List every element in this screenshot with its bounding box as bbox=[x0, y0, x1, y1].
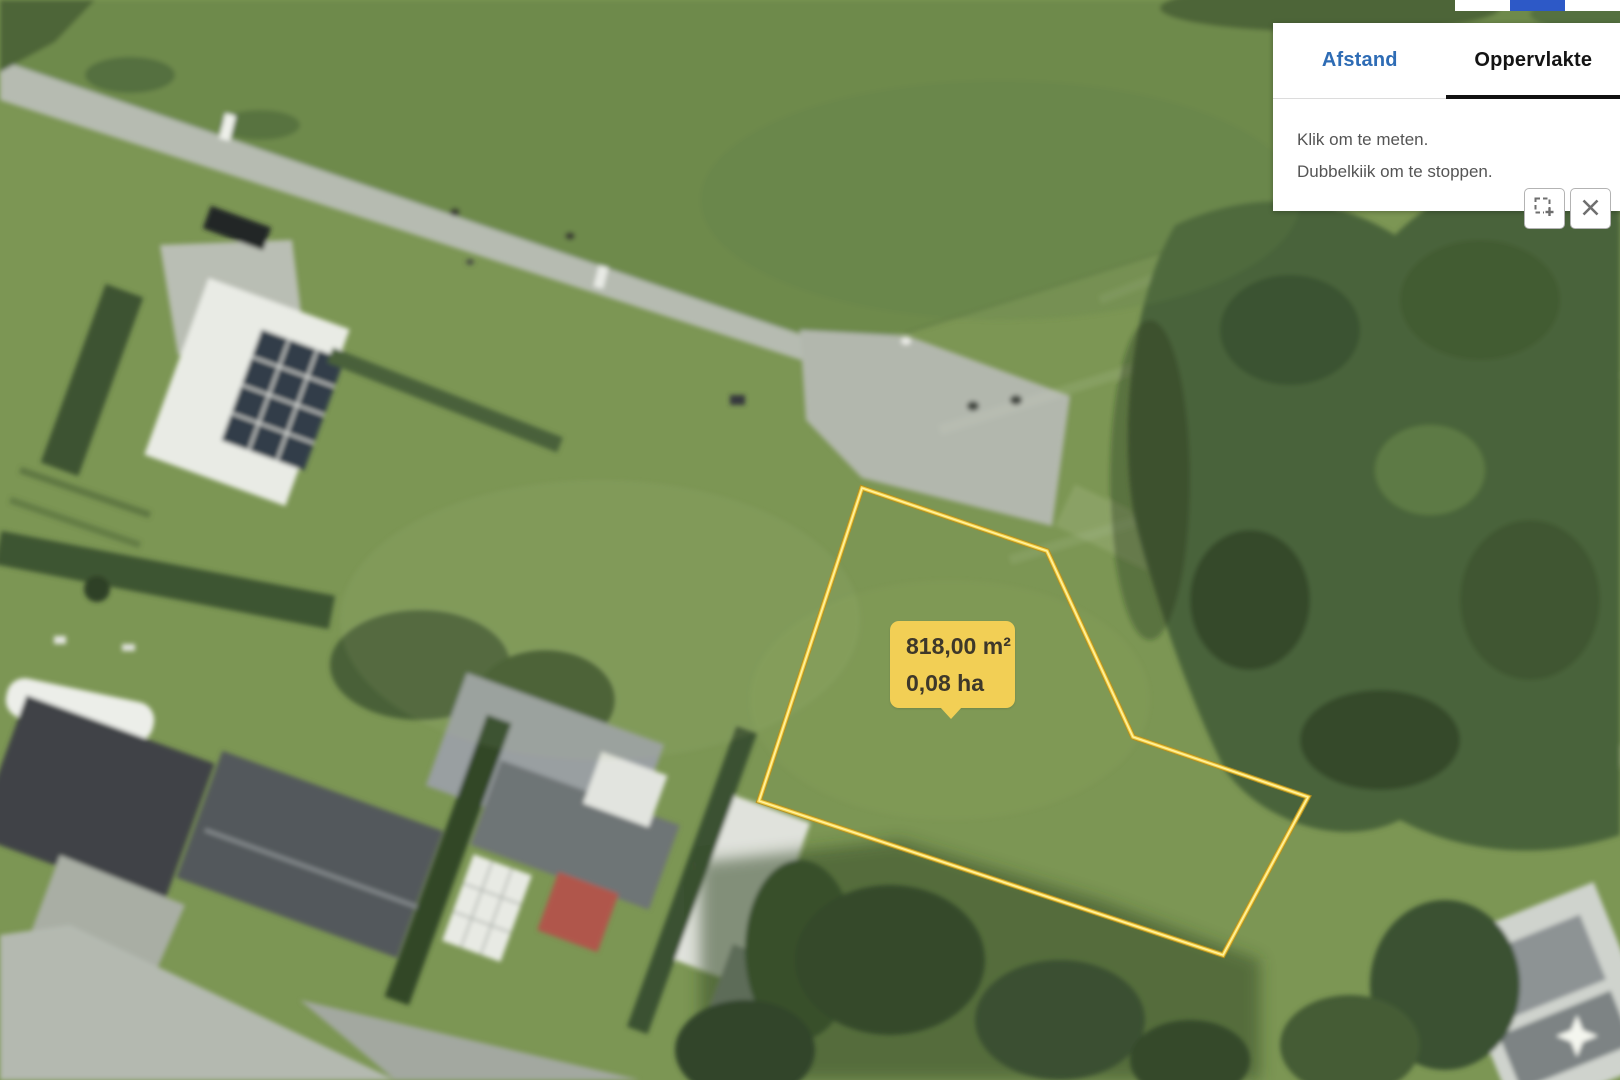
instruction-line-2: Dubbelkiik om te stoppen. bbox=[1297, 156, 1493, 188]
tab-afstand[interactable]: Afstand bbox=[1273, 23, 1447, 98]
measure-widget-panel: Afstand Oppervlakte Klik om te meten. Du… bbox=[1273, 23, 1620, 211]
measure-tabs: Afstand Oppervlakte bbox=[1273, 23, 1620, 99]
new-measurement-icon bbox=[1533, 196, 1556, 222]
measure-instructions: Klik om te meten. Dubbelkiik om te stopp… bbox=[1297, 124, 1493, 188]
toolbar-button-fragment[interactable] bbox=[1510, 0, 1565, 11]
cropped-toolbar-fragment bbox=[1455, 0, 1620, 11]
measure-panel-body: Klik om te meten. Dubbelkiik om te stopp… bbox=[1273, 99, 1620, 211]
close-icon bbox=[1580, 197, 1601, 221]
area-ha-value: 0,08 ha bbox=[906, 665, 1015, 702]
area-m2-value: 818,00 m² bbox=[906, 628, 1015, 665]
instruction-line-1: Klik om te meten. bbox=[1297, 124, 1493, 156]
measurement-area-label: 818,00 m² 0,08 ha bbox=[890, 621, 1015, 708]
tab-oppervlakte[interactable]: Oppervlakte bbox=[1447, 23, 1620, 98]
close-button[interactable] bbox=[1570, 188, 1611, 229]
map-measure-app: 818,00 m² 0,08 ha Afstand Oppervlakte Kl… bbox=[0, 0, 1620, 1080]
new-measurement-button[interactable] bbox=[1524, 188, 1565, 229]
